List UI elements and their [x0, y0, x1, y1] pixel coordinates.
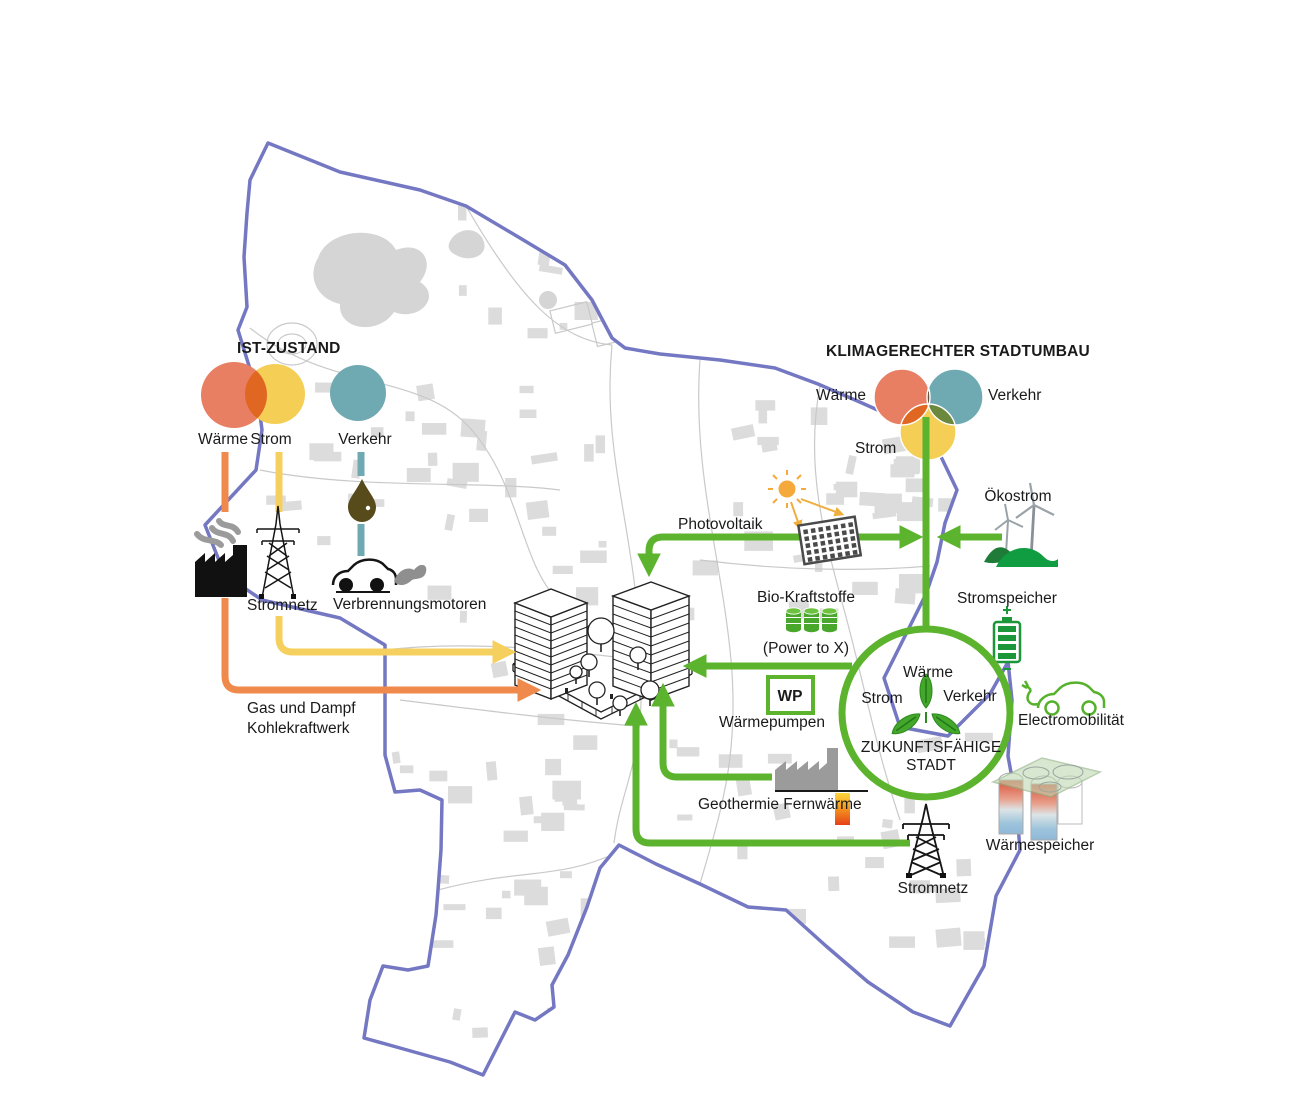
electric-car-icon	[1022, 681, 1104, 715]
umbau-title: KLIMAGERECHTER STADTUMBAU	[826, 343, 1090, 360]
biofuel-barrels-icon	[786, 608, 837, 632]
verkehr-circle	[330, 365, 386, 421]
ist-title: IST-ZUSTAND	[237, 340, 341, 357]
diagram-canvas: IST-ZUSTAND Wärme Strom Verkehr Stromnet…	[0, 0, 1300, 1095]
pylon-icon	[257, 506, 299, 599]
oekostrom-label: Ökostrom	[984, 487, 1051, 505]
venn-strom-label: Strom	[855, 440, 896, 457]
geothermie-label: Geothermie Fernwärme	[698, 796, 862, 813]
power-to-x-label: (Power to X)	[763, 640, 849, 657]
stadt-name-2: STADT	[906, 757, 956, 774]
wp-label: WP	[778, 688, 803, 705]
plug-icon	[1022, 681, 1031, 690]
sun-icon	[768, 470, 836, 522]
stromnetz-label: Stromnetz	[247, 597, 318, 614]
strom-circle	[245, 364, 305, 424]
waermepumpen-label: Wärmepumpen	[719, 714, 825, 731]
ist-legend-circles	[201, 362, 386, 428]
city-buildings-icon	[513, 582, 692, 719]
power-plant-icon	[195, 521, 247, 597]
battery-icon	[994, 606, 1020, 669]
exhaust-icon	[394, 565, 426, 585]
solar-panel-icon	[798, 517, 860, 564]
venn-waerme-label: Wärme	[816, 387, 866, 404]
stadt-waerme-label: Wärme	[903, 664, 953, 681]
stadt-verkehr-label: Verkehr	[943, 688, 996, 705]
stromnetz-bottom-label: Stromnetz	[898, 880, 969, 897]
combustion-car-icon	[333, 560, 426, 592]
waermespeicher-label: Wärmespeicher	[986, 837, 1095, 854]
energy-transition-diagram: IST-ZUSTAND Wärme Strom Verkehr Stromnet…	[0, 0, 1300, 1095]
photovoltaik-label: Photovoltaik	[678, 516, 763, 533]
legend-waerme-label: Wärme	[198, 431, 248, 448]
kraftwerk-label-2: Kohlekraftwerk	[247, 720, 350, 737]
stadt-name-1: ZUKUNFTSFÄHIGE	[861, 739, 1001, 756]
kraftwerk-label-1: Gas und Dampf	[247, 700, 356, 717]
oil-drop-icon	[348, 479, 376, 522]
verbrennungsmotoren-label: Verbrennungsmotoren	[333, 596, 486, 613]
bio-label: Bio-Kraftstoffe	[757, 589, 855, 606]
stromspeicher-label: Stromspeicher	[957, 590, 1057, 607]
legend-strom-label: Strom	[250, 431, 291, 448]
venn-verkehr-label: Verkehr	[988, 387, 1041, 404]
smoke-icon	[197, 521, 238, 545]
electromobilitaet-label: Electromobilität	[1018, 712, 1125, 729]
legend-verkehr-label: Verkehr	[338, 431, 391, 448]
stadt-strom-label: Strom	[861, 690, 902, 707]
